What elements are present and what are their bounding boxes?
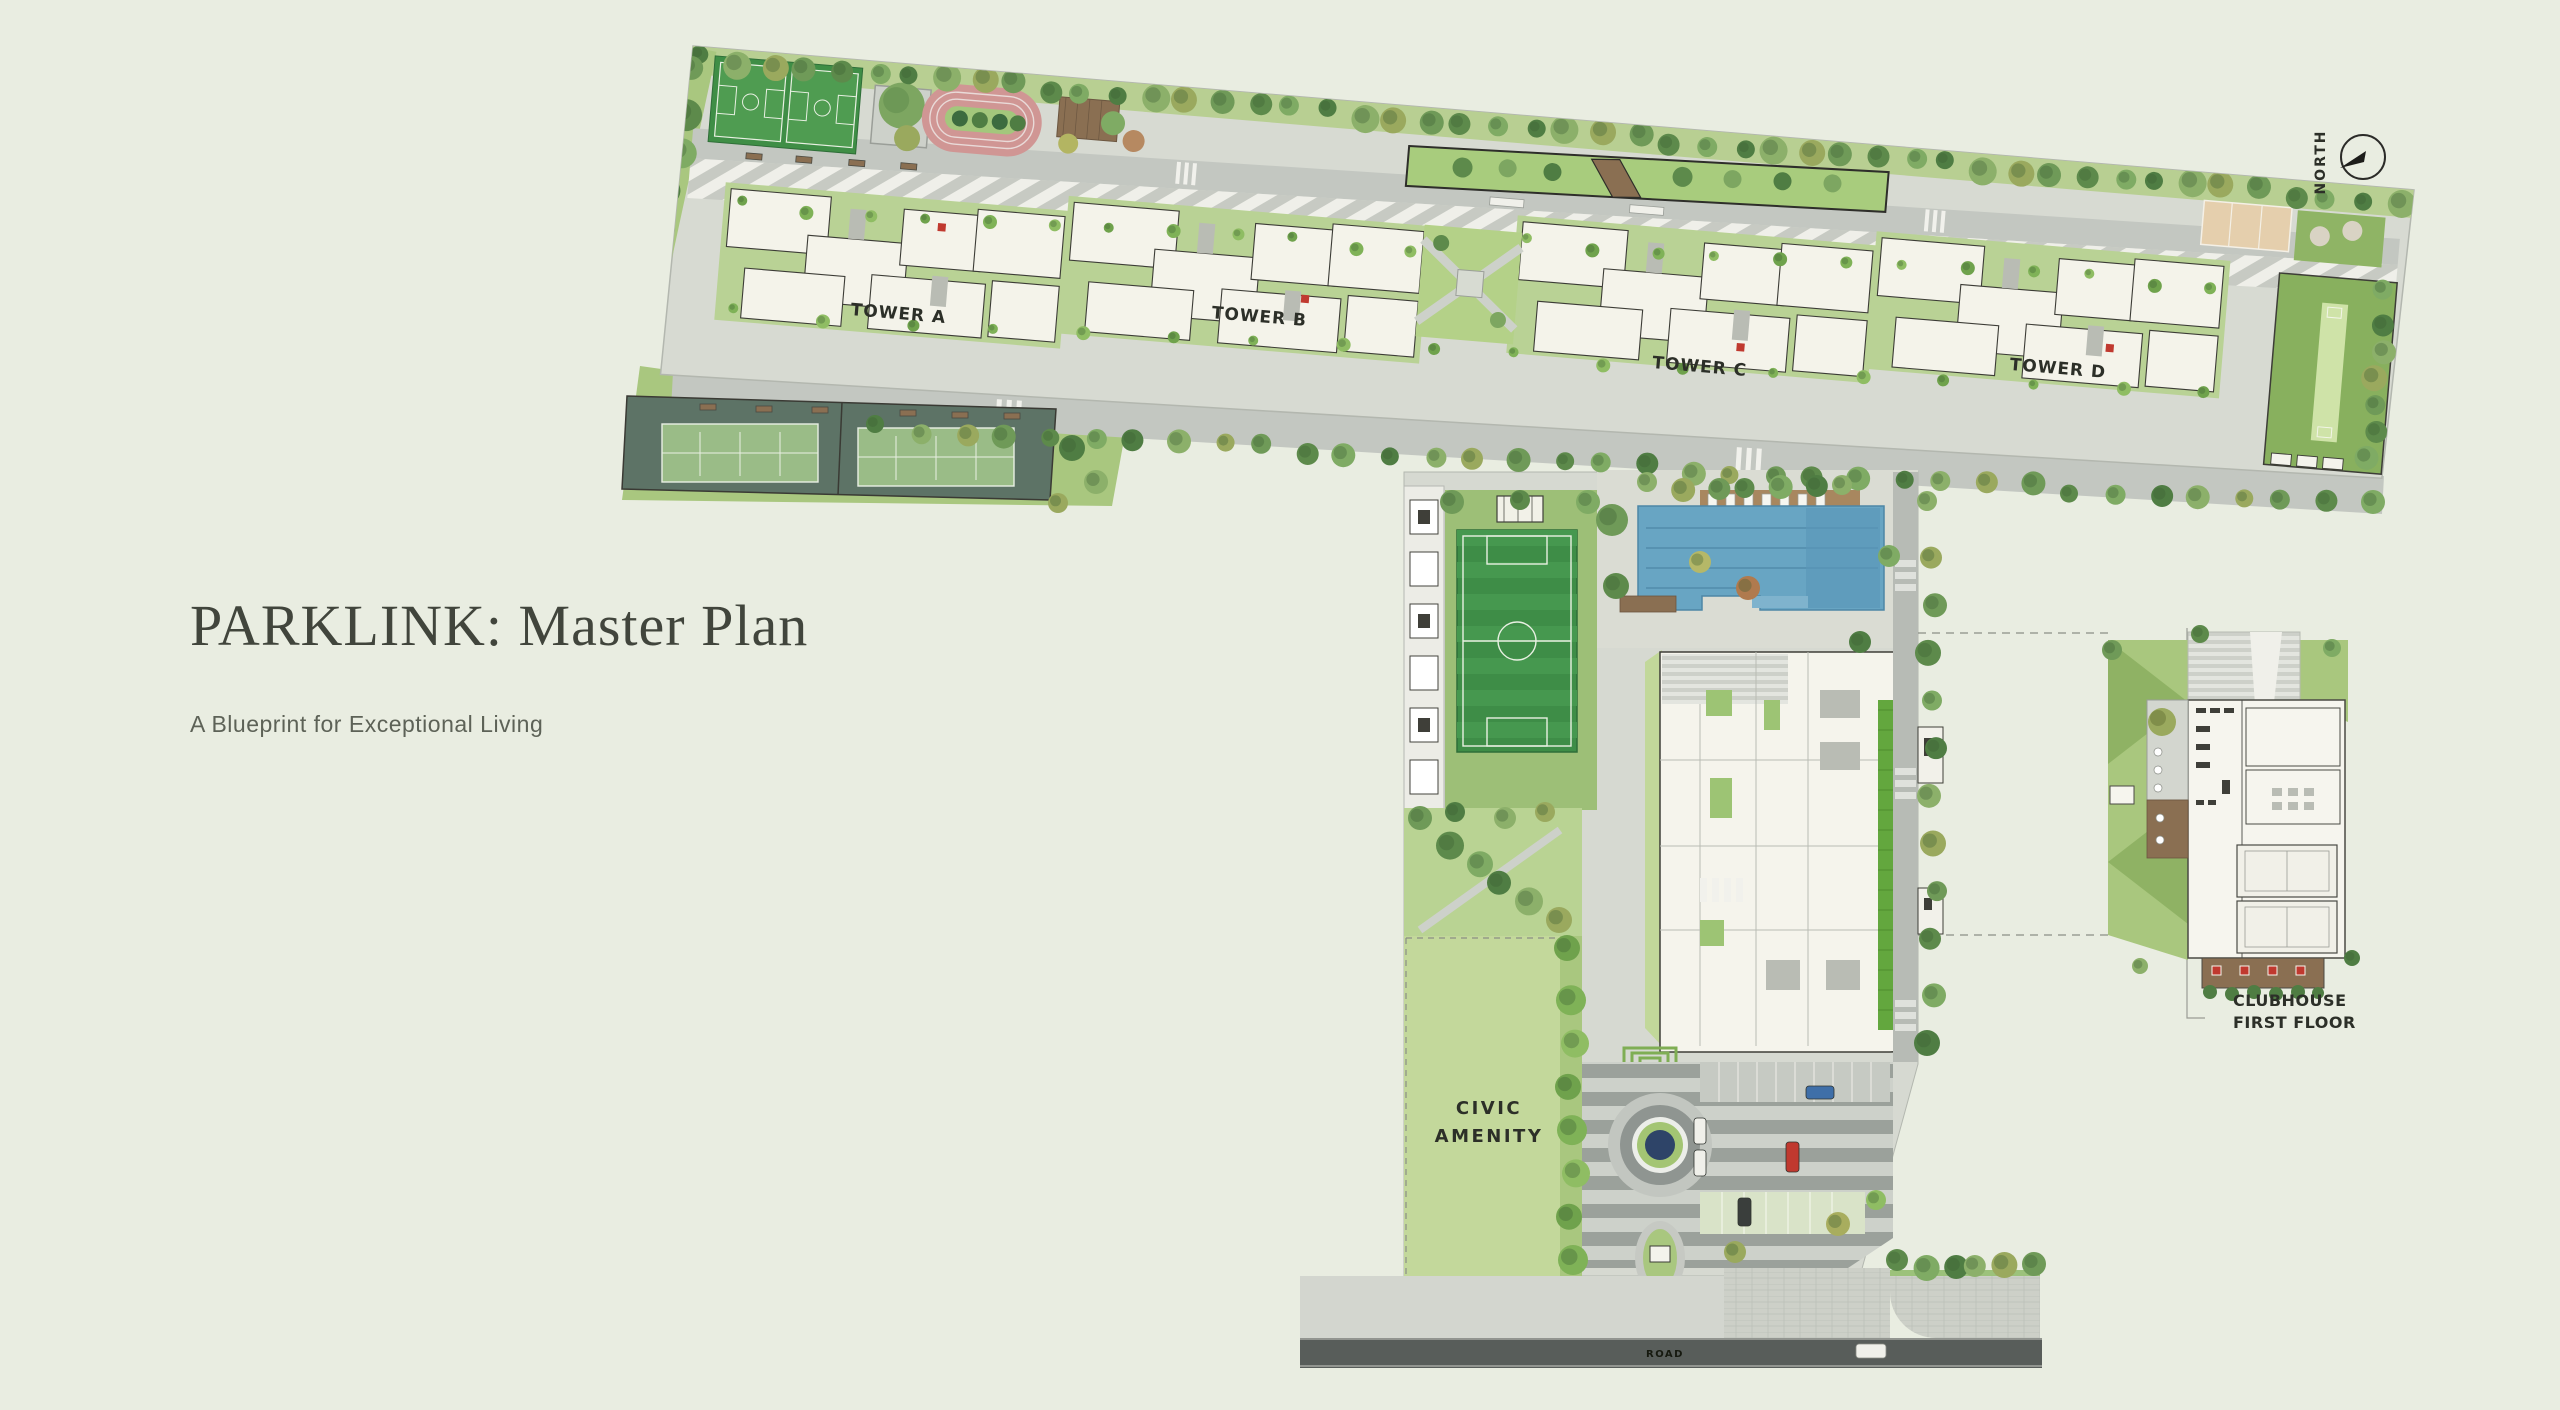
roundabout: [1608, 1093, 1712, 1197]
football-pitch: [1445, 490, 1597, 810]
bottom-road: ROAD: [1300, 1268, 2042, 1368]
master-plan-page: PARKLINK: Master Plan A Blueprint for Ex…: [0, 0, 2560, 1410]
clubhouse-callout-line2: FIRST FLOOR: [2233, 1013, 2356, 1032]
clubhouse-ground-floor: [1645, 650, 1906, 1052]
clubhouse-callout-line1: CLUBHOUSE: [2233, 991, 2347, 1010]
central-garden: [1415, 225, 1522, 345]
civic-amenity-label-line2: AMENITY: [1435, 1126, 1544, 1147]
tennis-courts: [622, 396, 1056, 500]
master-plan-map: TOWER A TOWER B TOWER C TOWER D: [0, 0, 2560, 1410]
civic-amenity-lawn: CIVIC AMENITY: [1404, 936, 1582, 1276]
civic-amenity-label-line1: CIVIC: [1456, 1098, 1522, 1119]
road-label: ROAD: [1646, 1349, 1684, 1360]
car-on-road: [1856, 1344, 1886, 1358]
clubhouse-precinct: CIVIC AMENITY ENTRY EXIT: [1404, 470, 1943, 1330]
swimming-pool: [1597, 470, 1918, 648]
north-label: NORTH: [2313, 129, 2329, 194]
